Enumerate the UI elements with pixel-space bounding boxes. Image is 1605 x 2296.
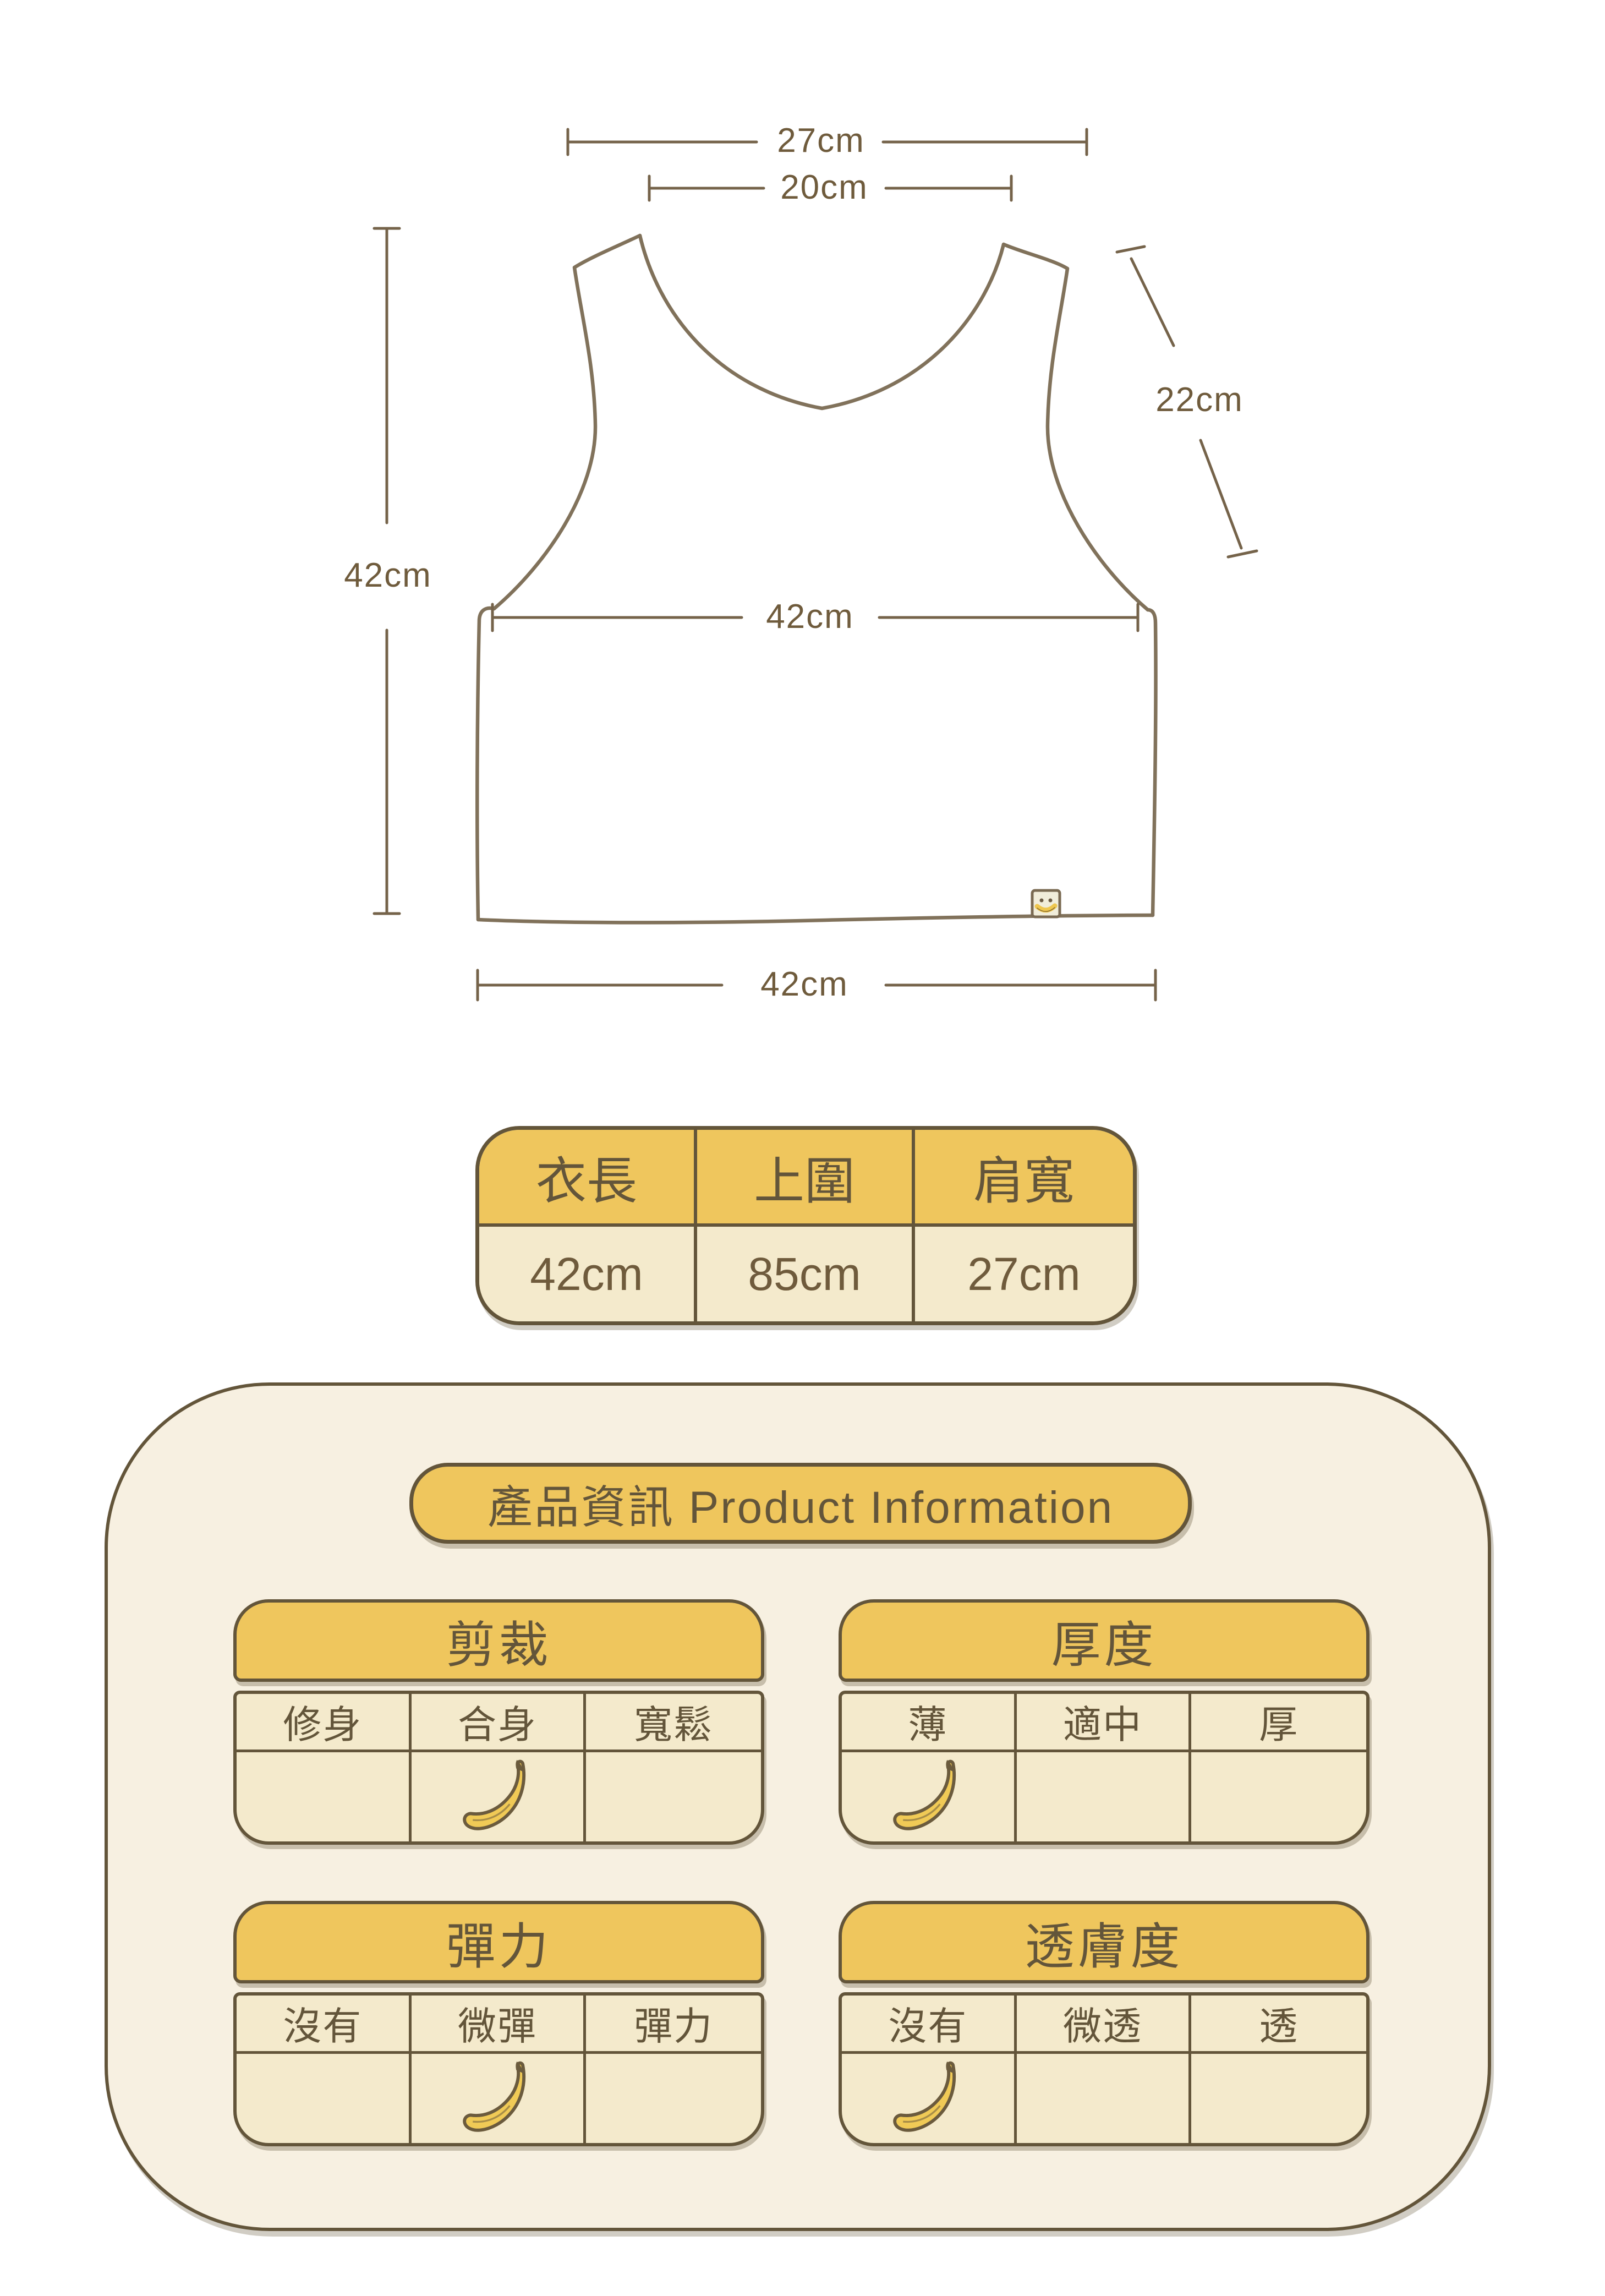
hem-tag-icon [1032, 890, 1060, 917]
spec-table-stretch-title: 彈力 [233, 1901, 764, 1983]
dim-label-armhole: 22cm [1155, 383, 1244, 417]
spec-mark-cell [1017, 1752, 1192, 1841]
spec-table-stretch-body: 沒有 微彈 彈力 [233, 1992, 764, 2146]
spec-mark-cell [586, 2054, 761, 2143]
spec-table-sheerness: 透膚度 沒有 微透 透 [839, 1901, 1370, 2146]
spec-option: 微透 [1017, 1996, 1192, 2054]
spec-table-thickness-body: 薄 適中 厚 [839, 1691, 1370, 1845]
spec-option: 彈力 [586, 1996, 761, 2054]
spec-option: 厚 [1191, 1694, 1366, 1752]
spec-mark-cell [237, 2054, 412, 2143]
spec-option: 薄 [842, 1694, 1017, 1752]
spec-table-cut-title: 剪裁 [233, 1599, 764, 1682]
dim-label-length: 42cm [344, 559, 432, 593]
spec-table-cut: 剪裁 修身 合身 寬鬆 [233, 1599, 764, 1845]
dim-label-hem: 42cm [760, 967, 848, 1002]
dim-label-neck-width: 20cm [780, 171, 868, 205]
size-table-header-shoulder: 肩寬 [915, 1130, 1133, 1227]
product-info-title: 產品資訊 Product Information [409, 1463, 1192, 1544]
dimension-lines [374, 129, 1257, 1000]
spec-table-thickness-title: 厚度 [839, 1599, 1370, 1682]
spec-table-sheerness-body: 沒有 微透 透 [839, 1992, 1370, 2146]
banana-icon [450, 2055, 545, 2142]
spec-option: 合身 [412, 1694, 587, 1752]
product-info-panel: 產品資訊 Product Information 剪裁 修身 合身 寬鬆 厚度 … [105, 1382, 1491, 2231]
size-table-value-shoulder: 27cm [915, 1227, 1133, 1321]
spec-mark-cell [842, 1752, 1017, 1841]
dim-label-shoulder-width: 27cm [777, 124, 865, 158]
spec-mark-cell [586, 1752, 761, 1841]
spec-mark-cell [237, 1752, 412, 1841]
spec-mark-cell [842, 2054, 1017, 2143]
spec-option: 適中 [1017, 1694, 1192, 1752]
spec-table-thickness: 厚度 薄 適中 厚 [839, 1599, 1370, 1845]
spec-option: 寬鬆 [586, 1694, 761, 1752]
spec-option: 沒有 [842, 1996, 1017, 2054]
size-table-value-length: 42cm [479, 1227, 697, 1321]
banana-icon [880, 2055, 975, 2142]
spec-mark-cell [412, 2054, 587, 2143]
spec-option: 微彈 [412, 1996, 587, 2054]
dim-label-chest: 42cm [766, 600, 854, 634]
banana-icon [880, 1753, 975, 1840]
spec-table-sheerness-title: 透膚度 [839, 1901, 1370, 1983]
spec-mark-cell [1191, 1752, 1366, 1841]
size-table: 衣長 上圍 肩寬 42cm 85cm 27cm [475, 1126, 1137, 1325]
spec-mark-cell [412, 1752, 587, 1841]
size-chart-page: 27cm 20cm 22cm 42cm 42cm 42cm 衣長 上圍 肩寬 4… [0, 0, 1605, 2296]
spec-table-stretch: 彈力 沒有 微彈 彈力 [233, 1901, 764, 2146]
garment-diagram [330, 99, 1293, 1046]
spec-option: 修身 [237, 1694, 412, 1752]
spec-mark-cell [1017, 2054, 1192, 2143]
spec-option: 透 [1191, 1996, 1366, 2054]
size-table-header-bust: 上圍 [697, 1130, 915, 1227]
spec-table-cut-body: 修身 合身 寬鬆 [233, 1691, 764, 1845]
banana-icon [450, 1753, 545, 1840]
garment-outline [477, 236, 1155, 922]
spec-option: 沒有 [237, 1996, 412, 2054]
size-table-header-length: 衣長 [479, 1130, 697, 1227]
spec-mark-cell [1191, 2054, 1366, 2143]
size-table-value-bust: 85cm [697, 1227, 915, 1321]
